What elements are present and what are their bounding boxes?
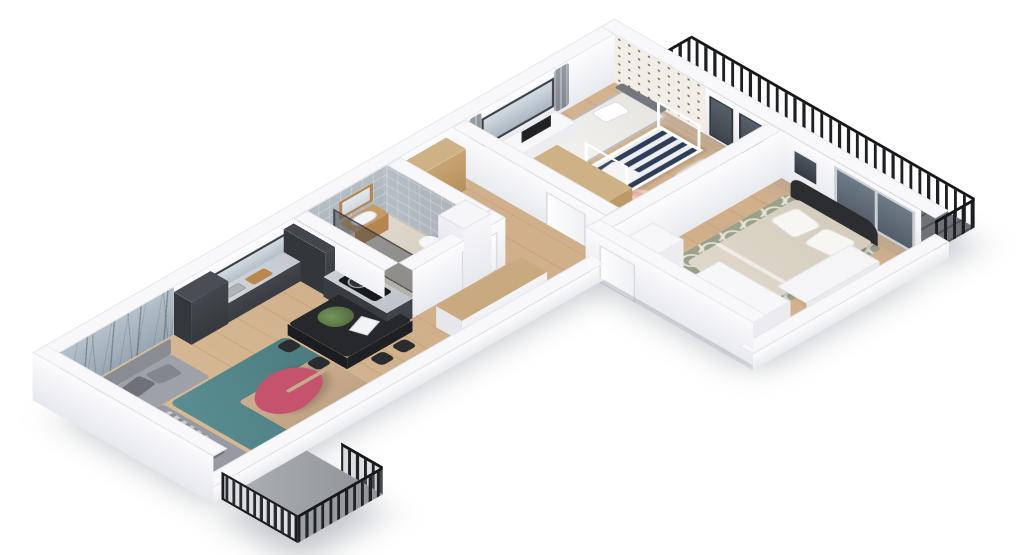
sliding-door-divider [875, 191, 878, 230]
floorplan-render [0, 0, 1024, 555]
bed-pillow-1 [770, 208, 820, 238]
daybed-pillow [592, 102, 629, 122]
dining-magazine [351, 317, 379, 335]
master-bedroom-door [600, 245, 636, 303]
nursery-curtain-right [554, 62, 569, 113]
